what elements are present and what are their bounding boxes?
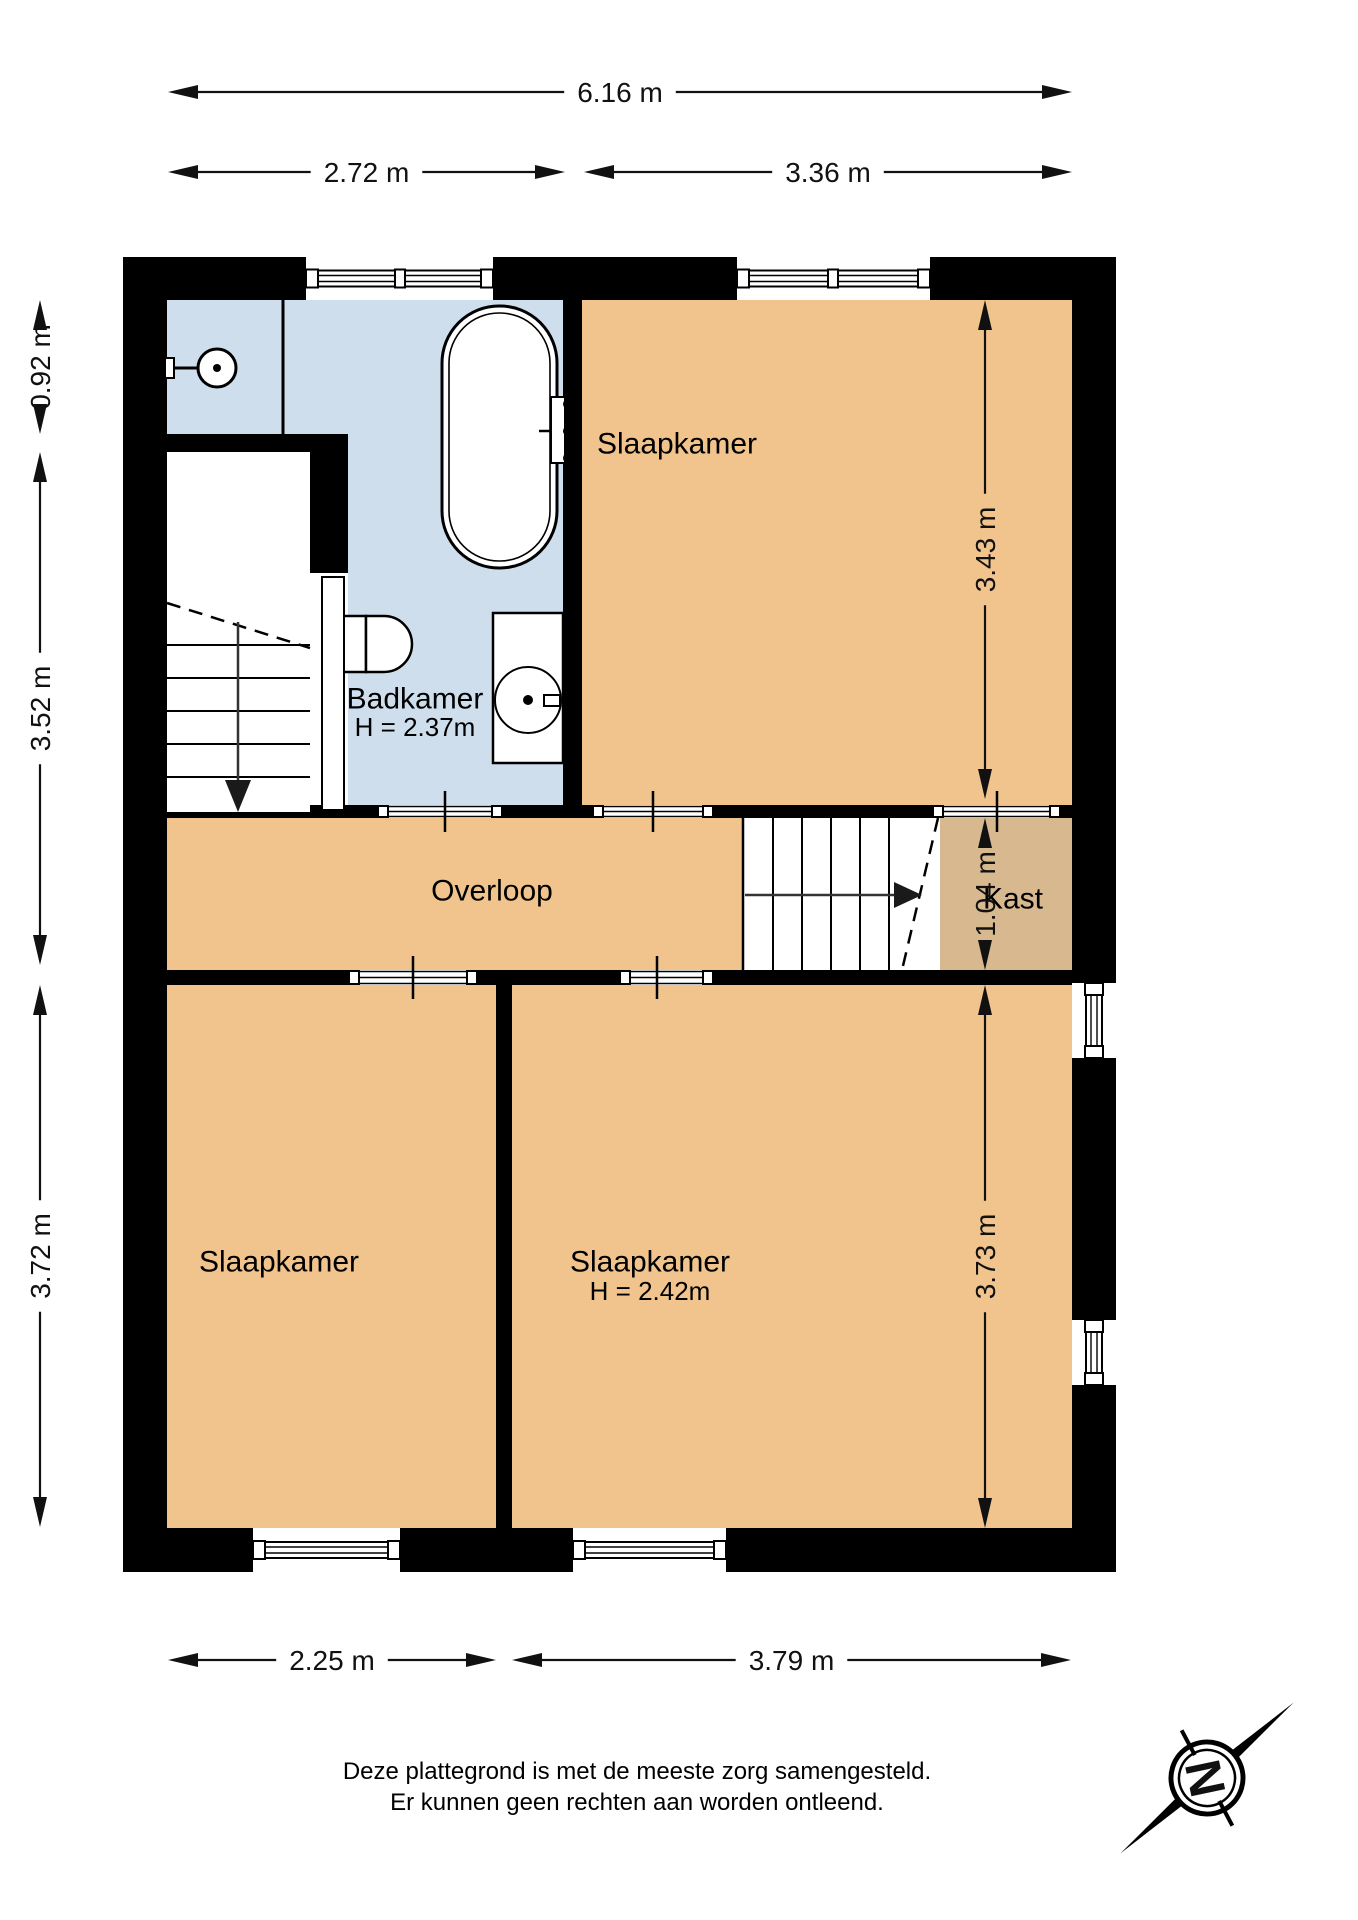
wall-middenband-boven-2 xyxy=(502,805,593,818)
window-bottom-1 xyxy=(253,1541,400,1559)
window-bottom-2-sill-left xyxy=(573,1541,585,1559)
window-top-slaapkamer-mullion xyxy=(828,270,838,288)
dim-breedte-badkamer-label: 2.72 m xyxy=(324,157,410,188)
dim-breedte-badkamer: 2.72 m xyxy=(168,157,565,188)
window-right-1-sill-bottom xyxy=(1085,1046,1103,1058)
dim-onder-rechts: 3.79 m xyxy=(512,1645,1071,1676)
deur-kast-jamb-right xyxy=(1050,806,1060,817)
dim-hoogte-trap-arrowhead-top xyxy=(33,452,47,482)
window-bottom-2-glazing xyxy=(585,1542,714,1558)
wall-douche-trap xyxy=(167,434,348,452)
window-bottom-2 xyxy=(573,1541,726,1559)
shower-head-dot xyxy=(213,364,221,372)
room-sublabel-badkamer: H = 2.37m xyxy=(355,712,476,742)
disclaimer-line-2: Er kunnen geen rechten aan worden ontlee… xyxy=(390,1789,884,1816)
window-top-slaapkamer xyxy=(737,270,930,288)
dim-breedte-totaal-label: 6.16 m xyxy=(577,77,663,108)
window-top-badkamer-sill-right xyxy=(481,270,493,288)
room-label-slaapkamer-linksonder: Slaapkamer xyxy=(199,1246,359,1279)
window-top-badkamer-mullion xyxy=(395,270,405,288)
room-label-badkamer: Badkamer xyxy=(347,683,484,716)
window-bottom-1-glazing xyxy=(265,1542,388,1558)
window-top-badkamer xyxy=(306,270,493,288)
bath-faucet xyxy=(551,397,565,463)
dim-hoogte-slaapkamer-boven-label: 3.43 m xyxy=(970,507,1001,593)
dim-onder-rechts-label: 3.79 m xyxy=(749,1645,835,1676)
dim-breedte-slaapkamer-boven-arrowhead-left xyxy=(584,165,614,179)
room-label-slaapkamer-rechtsonder: Slaapkamer xyxy=(570,1246,730,1279)
dim-hoogte-slaapkamer-links-label: 3.72 m xyxy=(25,1213,56,1299)
dim-hoogte-slaapkamer-rechts-label: 3.73 m xyxy=(970,1214,1001,1300)
dim-hoogte-douche: 0.92 m xyxy=(25,300,56,434)
dim-breedte-badkamer-arrowhead-right xyxy=(535,165,565,179)
washbasin-drain xyxy=(523,695,533,705)
window-top-slaapkamer-sill-left xyxy=(737,270,749,288)
wall-middenband-boven-4 xyxy=(1060,805,1072,818)
washbasin-tap xyxy=(544,695,560,706)
room-sublabel-slaapkamer-rechtsonder: H = 2.42m xyxy=(590,1276,711,1306)
dim-onder-links-label: 2.25 m xyxy=(289,1645,375,1676)
disclaimer-line-1: Deze plattegrond is met de meeste zorg s… xyxy=(343,1758,931,1785)
deur-slaapkamer-rechts-jamb-right xyxy=(703,971,713,984)
wall-left xyxy=(123,257,167,1572)
wall-top-b xyxy=(493,257,737,300)
wall-right-b xyxy=(1072,1058,1116,1320)
dim-breedte-totaal-arrowhead-right xyxy=(1042,85,1072,99)
wall-middenband-onder-3 xyxy=(713,970,1072,985)
dim-hoogte-trap-arrowhead-bottom xyxy=(33,935,47,965)
wall-bottom-a xyxy=(123,1528,253,1572)
dim-breedte-badkamer-arrowhead-left xyxy=(168,165,198,179)
deur-slaapkamer-rechts-jamb-left xyxy=(620,971,630,984)
compass: N xyxy=(1083,1678,1331,1879)
wall-middenband-onder-1 xyxy=(167,970,349,985)
dim-breedte-slaapkamer-boven-label: 3.36 m xyxy=(785,157,871,188)
toilet-bowl xyxy=(366,616,412,672)
deur-slaapkamer-boven-jamb-left xyxy=(593,806,603,817)
window-bottom-1-sill-right xyxy=(388,1541,400,1559)
window-right-1 xyxy=(1085,983,1103,1058)
shower-wall-plate xyxy=(165,358,174,378)
window-right-2-sill-top xyxy=(1085,1320,1103,1332)
wall-badkamer-slaapkamer xyxy=(563,300,582,805)
deur-slaapkamer-links-jamb-right xyxy=(467,971,477,984)
bathroom-door xyxy=(322,577,344,810)
dim-hoogte-trap: 3.52 m xyxy=(25,452,56,965)
bathtub xyxy=(442,306,557,568)
bath-faucet-knob-0 xyxy=(563,399,573,409)
bath-faucet-knob-1 xyxy=(563,426,573,436)
deur-kast-jamb-left xyxy=(933,806,943,817)
window-right-1-sill-top xyxy=(1085,983,1103,995)
layer-annotations: Deze plattegrond is met de meeste zorg s… xyxy=(343,1678,1331,1879)
wall-trap-badkamer xyxy=(310,452,348,573)
deur-badkamer-jamb-left xyxy=(378,806,388,817)
dim-hoogte-douche-label: 0.92 m xyxy=(25,324,56,410)
deur-badkamer-jamb-right xyxy=(492,806,502,817)
dim-breedte-slaapkamer-boven: 3.36 m xyxy=(584,157,1072,188)
dim-hoogte-slaapkamer-links-arrowhead-top xyxy=(33,985,47,1015)
window-top-slaapkamer-sill-right xyxy=(918,270,930,288)
dim-onder-links-arrowhead-left xyxy=(168,1653,198,1667)
window-right-2 xyxy=(1085,1320,1103,1385)
bath-faucet-knob-2 xyxy=(563,453,573,463)
wall-slaapkamers-scheiding xyxy=(496,985,512,1528)
dim-hoogte-trap-label: 3.52 m xyxy=(25,666,56,752)
dim-hoogte-slaapkamer-links-arrowhead-bottom xyxy=(33,1497,47,1527)
dim-onder-links-arrowhead-right xyxy=(466,1653,496,1667)
dim-hoogte-slaapkamer-links: 3.72 m xyxy=(25,985,56,1527)
room-label-slaapkamer-boven: Slaapkamer xyxy=(597,428,757,461)
window-right-1-glazing xyxy=(1086,995,1102,1046)
dim-breedte-slaapkamer-boven-arrowhead-right xyxy=(1042,165,1072,179)
floor-plan-page: BadkamerH = 2.37mSlaapkamerOverloopKastS… xyxy=(0,0,1358,1920)
dim-onder-links: 2.25 m xyxy=(168,1645,496,1676)
dim-onder-rechts-arrowhead-left xyxy=(512,1653,542,1667)
wall-middenband-boven-3 xyxy=(713,805,933,818)
wall-trapgat-overloop xyxy=(167,812,310,818)
floor-plan: BadkamerH = 2.37mSlaapkamerOverloopKastS… xyxy=(0,0,1358,1920)
wall-bottom-b xyxy=(400,1528,573,1572)
dim-breedte-totaal: 6.16 m xyxy=(168,77,1072,108)
room-label-overloop: Overloop xyxy=(431,875,553,908)
window-bottom-1-sill-left xyxy=(253,1541,265,1559)
wall-bottom-c xyxy=(726,1528,1116,1572)
deur-slaapkamer-boven-jamb-right xyxy=(703,806,713,817)
window-right-2-glazing xyxy=(1086,1332,1102,1373)
wall-middenband-onder-2 xyxy=(477,970,620,985)
window-right-2-sill-bottom xyxy=(1085,1373,1103,1385)
deur-slaapkamer-links-jamb-left xyxy=(349,971,359,984)
dim-breedte-totaal-arrowhead-left xyxy=(168,85,198,99)
dim-onder-rechts-arrowhead-right xyxy=(1041,1653,1071,1667)
dim-hoogte-kast-label: 1.04 m xyxy=(970,851,1001,937)
window-bottom-2-sill-right xyxy=(714,1541,726,1559)
wall-right-a xyxy=(1072,257,1116,983)
window-top-badkamer-sill-left xyxy=(306,270,318,288)
